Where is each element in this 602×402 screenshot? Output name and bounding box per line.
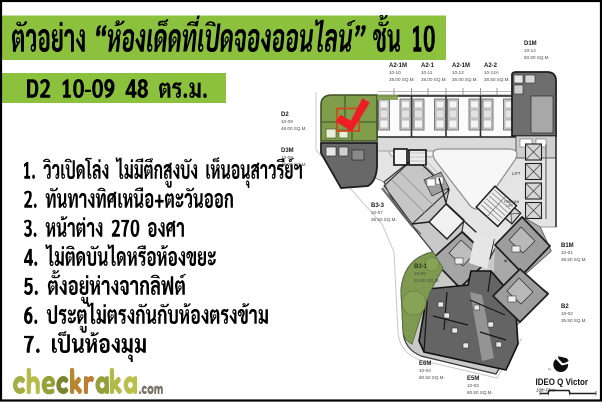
svg-text:D2: D2: [281, 112, 289, 118]
svg-text:E6M: E6M: [419, 361, 431, 367]
svg-text:36.50 SQ.M.: 36.50 SQ.M.: [561, 257, 587, 262]
svg-text:10-07: 10-07: [371, 210, 383, 215]
svg-text:48.00 SQ.M.: 48.00 SQ.M.: [281, 126, 307, 131]
svg-text:60.50 SQ.M.: 60.50 SQ.M.: [419, 375, 445, 380]
svg-text:B3-3: B3-3: [371, 203, 385, 209]
svg-text:A2-1: A2-1: [421, 63, 435, 69]
svg-text:36.50 SQ.M.: 36.50 SQ.M.: [371, 217, 397, 222]
svg-text:10-12: 10-12: [452, 70, 464, 75]
svg-text:IDEO Q Victor: IDEO Q Victor: [536, 377, 589, 387]
svg-text:10-02: 10-02: [561, 311, 573, 316]
svg-text:A2-1M: A2-1M: [452, 63, 470, 69]
svg-text:D1M: D1M: [524, 41, 537, 47]
svg-text:LIFT: LIFT: [506, 204, 513, 208]
svg-text:B2: B2: [561, 304, 569, 310]
svg-text:by: by: [548, 367, 552, 371]
svg-text:28.00 SQ.M.: 28.00 SQ.M.: [389, 77, 415, 82]
svg-text:50.00 SQ.M.: 50.00 SQ.M.: [524, 55, 550, 60]
svg-text:A2-1M: A2-1M: [389, 63, 407, 69]
svg-text:B3-1: B3-1: [414, 264, 428, 270]
svg-text:28.00 SQ.M.: 28.00 SQ.M.: [452, 77, 478, 82]
svg-text:10-09: 10-09: [281, 119, 293, 124]
svg-text:35.50 SQ.M.: 35.50 SQ.M.: [561, 318, 587, 323]
svg-text:34.00 SQ.M.: 34.00 SQ.M.: [414, 278, 440, 283]
svg-text:28.50 SQ.M.: 28.50 SQ.M.: [484, 77, 510, 82]
svg-text:10-03: 10-03: [467, 383, 479, 388]
svg-text:A2-2: A2-2: [484, 63, 498, 69]
svg-text:B1M: B1M: [561, 243, 574, 249]
svg-text:10-05: 10-05: [414, 271, 426, 276]
svg-text:10-10: 10-10: [389, 70, 401, 75]
svg-text:10-04: 10-04: [419, 368, 431, 373]
svg-text:10-14: 10-14: [524, 48, 536, 53]
svg-text:48.00 SQ.M.: 48.00 SQ.M.: [281, 162, 307, 167]
svg-text:10-01: 10-01: [561, 250, 573, 255]
svg-text:10-12A: 10-12A: [484, 70, 500, 75]
svg-text:LIFT: LIFT: [512, 171, 521, 176]
svg-text:28.00 SQ.M.: 28.00 SQ.M.: [421, 77, 447, 82]
svg-text:10-11: 10-11: [421, 70, 433, 75]
svg-text:60.50 SQ.M.: 60.50 SQ.M.: [467, 390, 493, 395]
svg-text:E5M: E5M: [467, 376, 479, 382]
svg-text:D3M: D3M: [281, 148, 294, 154]
